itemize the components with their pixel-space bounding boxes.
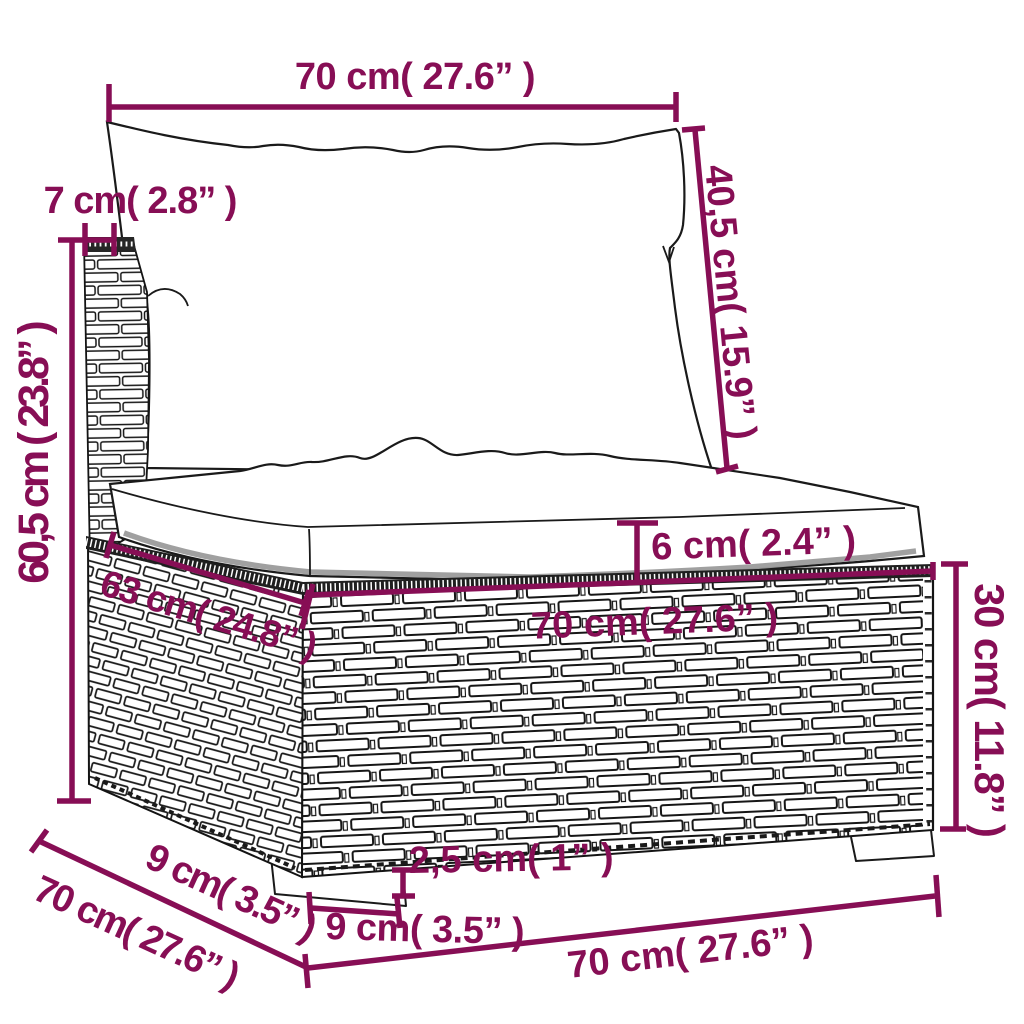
svg-text:2,5 cm( 1” ): 2,5 cm( 1” ) (408, 836, 614, 882)
svg-text:30 cm( 11.8” ): 30 cm( 11.8” ) (966, 583, 1013, 837)
svg-text:70 cm( 27.6” ): 70 cm( 27.6” ) (295, 56, 535, 98)
svg-text:6 cm( 2.4” ): 6 cm( 2.4” ) (650, 519, 856, 568)
svg-text:7 cm( 2.8” ): 7 cm( 2.8” ) (44, 180, 237, 222)
svg-text:60,5 cm ( 23.8” ): 60,5 cm ( 23.8” ) (10, 322, 58, 584)
